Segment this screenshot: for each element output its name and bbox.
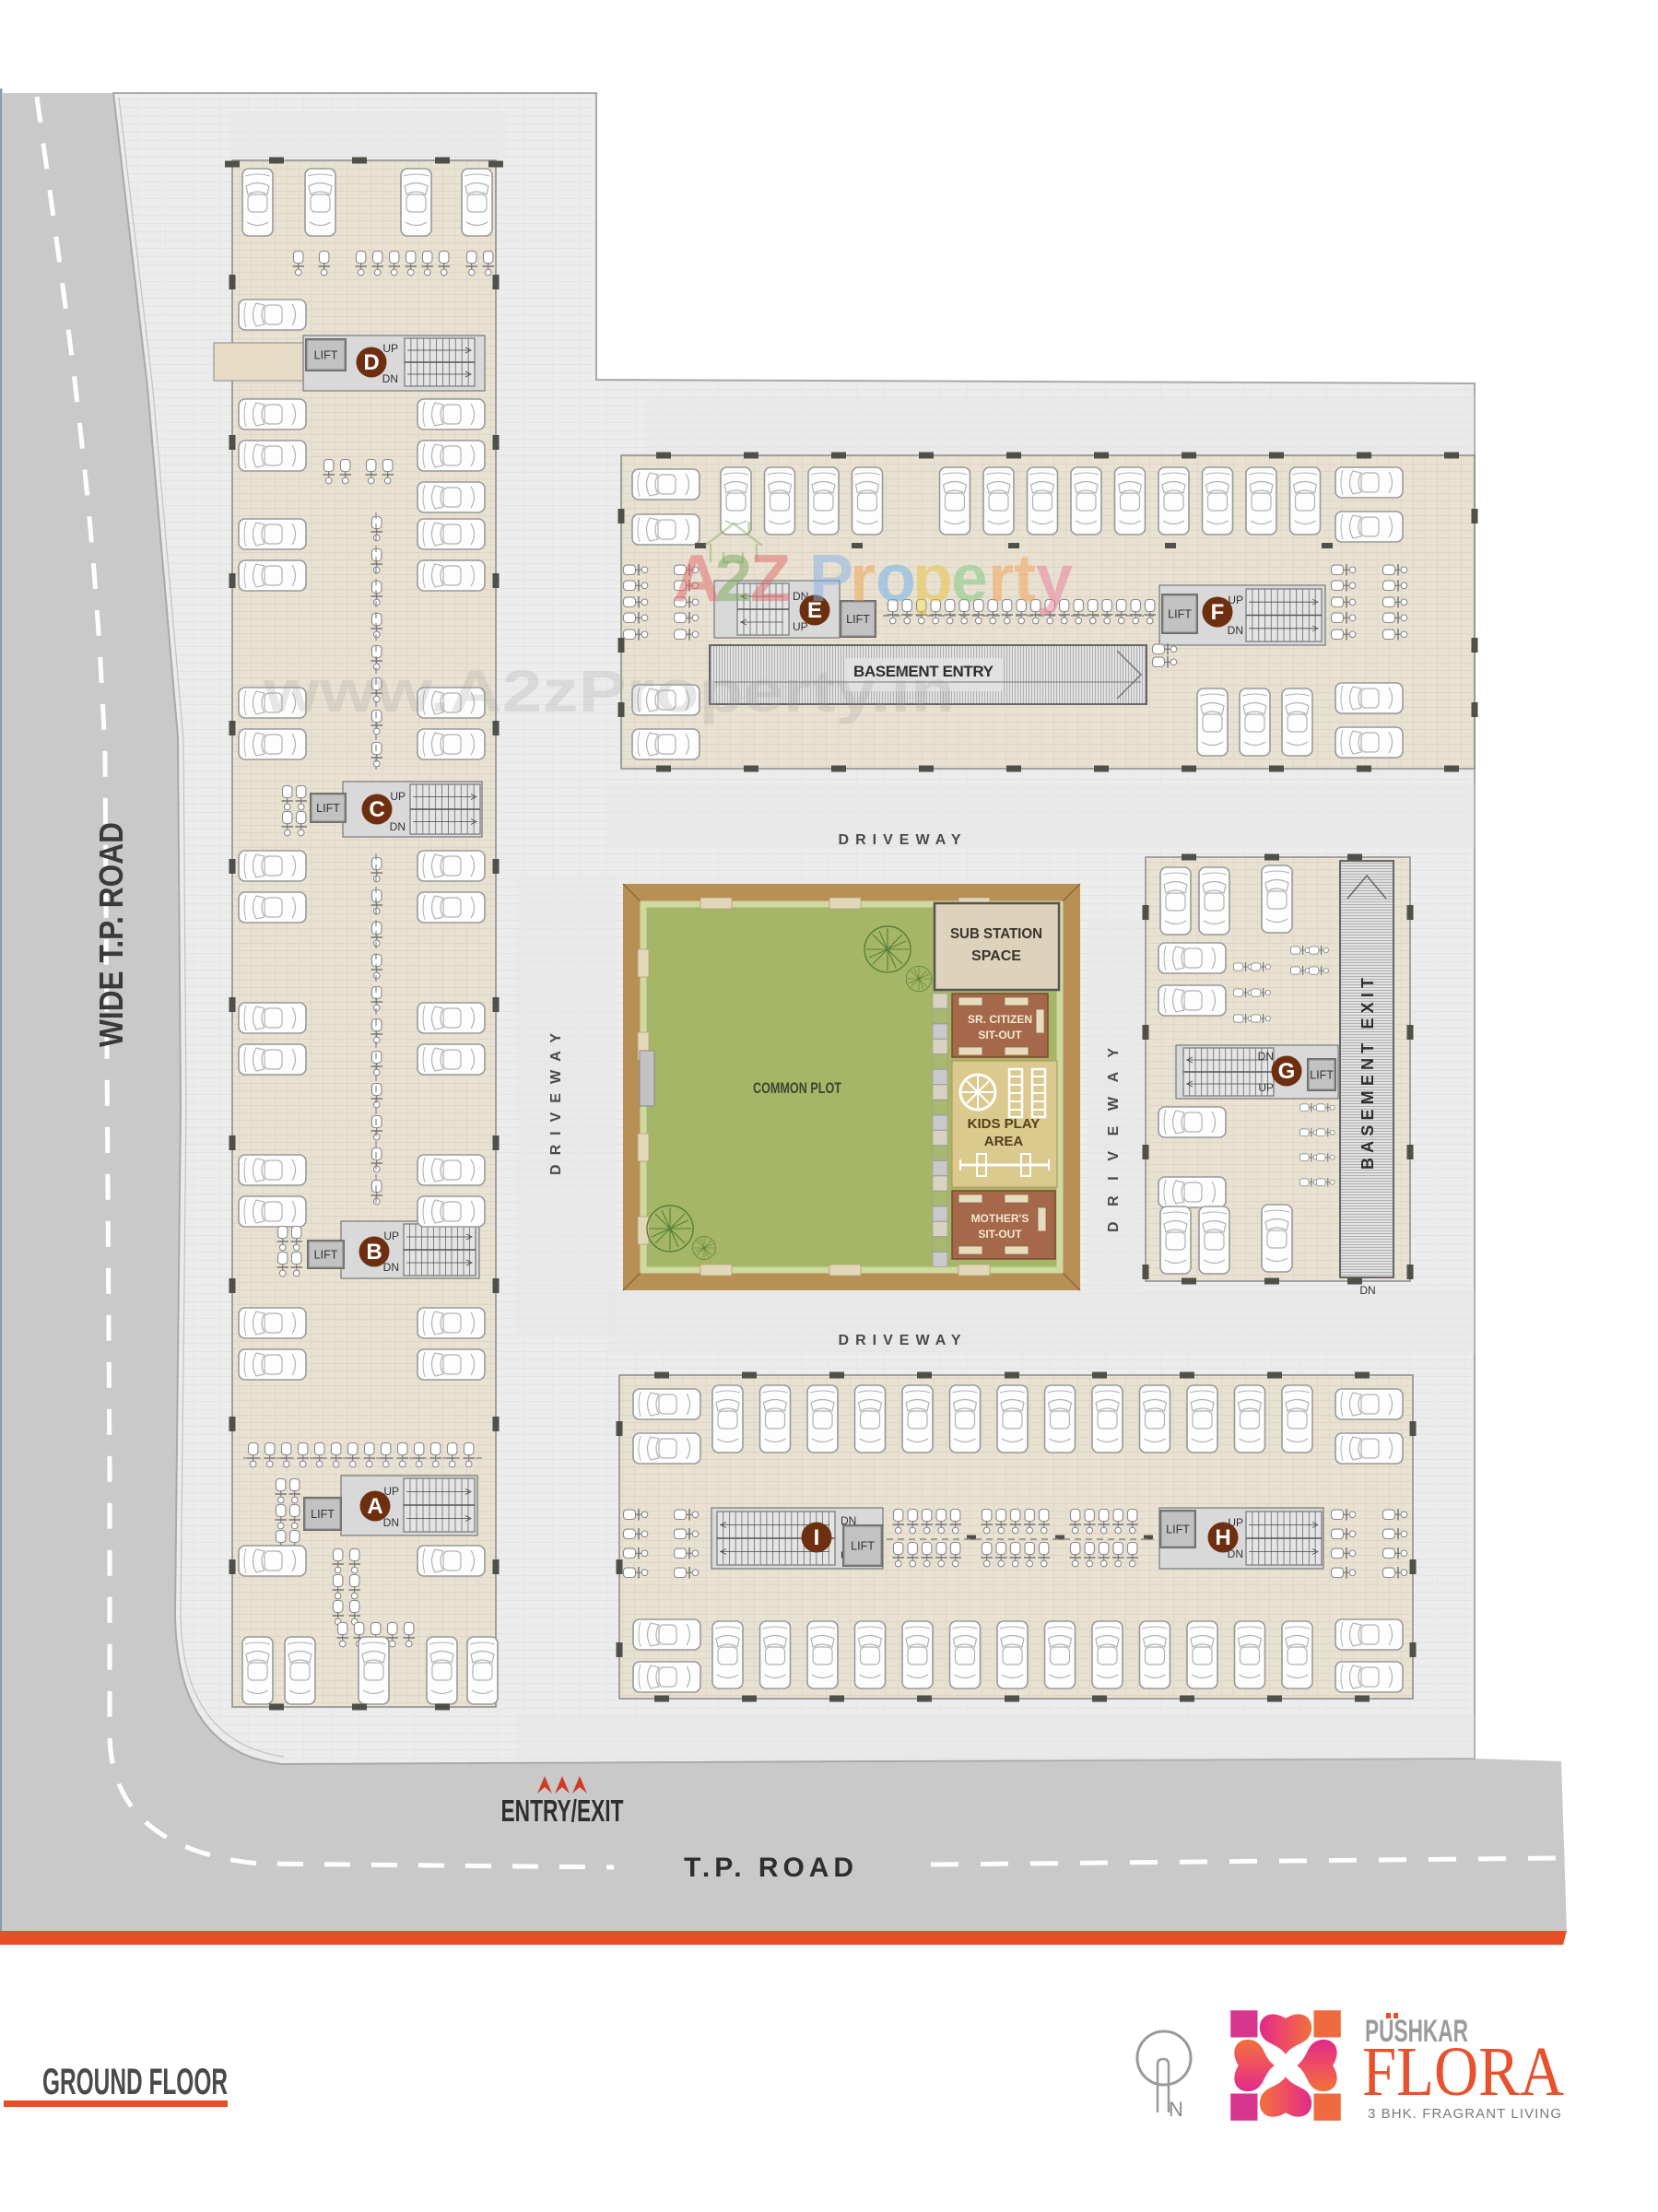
svg-text:r: r: [988, 542, 1014, 616]
svg-text:D: D: [363, 350, 379, 375]
svg-text:UP: UP: [1258, 1081, 1274, 1094]
svg-text:UP: UP: [383, 1230, 399, 1242]
svg-text:LIFT: LIFT: [314, 1249, 338, 1262]
svg-text:LIFT: LIFT: [1310, 1069, 1334, 1082]
svg-text:3 BHK. FRAGRANT LIVING: 3 BHK. FRAGRANT LIVING: [1368, 2106, 1561, 2122]
svg-text:SIT-OUT: SIT-OUT: [978, 1228, 1022, 1241]
svg-text:GROUND FLOOR: GROUND FLOOR: [42, 2062, 228, 2102]
svg-text:2: 2: [715, 542, 752, 616]
svg-text:UP: UP: [382, 342, 398, 355]
svg-text:FLORA: FLORA: [1362, 2033, 1564, 2111]
svg-text:F: F: [1211, 600, 1225, 625]
svg-text:UP: UP: [1228, 594, 1243, 606]
svg-text:y: y: [1036, 542, 1073, 616]
svg-text:B: B: [366, 1240, 382, 1265]
svg-text:UP: UP: [390, 790, 406, 803]
svg-text:UP: UP: [1228, 1516, 1243, 1529]
svg-text:o: o: [876, 542, 916, 616]
svg-text:DRIVEWAY: DRIVEWAY: [839, 832, 961, 848]
svg-text:SR. CITIZEN: SR. CITIZEN: [968, 1013, 1032, 1026]
svg-text:H: H: [1215, 1525, 1230, 1550]
svg-text:SUB STATION: SUB STATION: [950, 926, 1042, 942]
svg-text:C: C: [369, 797, 384, 822]
svg-text:LIFT: LIFT: [851, 1540, 875, 1553]
svg-text:I: I: [814, 1525, 820, 1550]
svg-text:DN: DN: [383, 1516, 399, 1529]
svg-text:r: r: [850, 542, 876, 616]
svg-text:DN: DN: [1258, 1050, 1274, 1063]
svg-text:T.P. ROAD: T.P. ROAD: [684, 1853, 853, 1883]
svg-text:DRIVEWAY: DRIVEWAY: [839, 1333, 961, 1348]
svg-text:A: A: [367, 1494, 382, 1519]
svg-text:DN: DN: [390, 820, 406, 833]
svg-text:e: e: [951, 542, 988, 616]
svg-text:N: N: [1169, 2098, 1183, 2121]
svg-text:DN: DN: [383, 1261, 399, 1274]
svg-text:p: p: [912, 542, 953, 616]
svg-text:A: A: [673, 542, 721, 616]
svg-text:AREA: AREA: [984, 1134, 1024, 1149]
svg-text:www.A2zProperty.in: www.A2zProperty.in: [263, 658, 955, 724]
svg-text:Z: Z: [750, 542, 791, 616]
svg-text:G: G: [1278, 1059, 1296, 1084]
svg-text:DN: DN: [1228, 1547, 1243, 1560]
svg-text:t: t: [1014, 542, 1036, 616]
svg-text:LIFT: LIFT: [311, 1508, 335, 1521]
svg-text:DN: DN: [1359, 1284, 1375, 1297]
svg-text:COMMON PLOT: COMMON PLOT: [753, 1079, 841, 1097]
svg-text:P: P: [809, 542, 853, 616]
svg-text:SPACE: SPACE: [971, 948, 1021, 964]
svg-text:LIFT: LIFT: [1168, 608, 1192, 621]
svg-text:ENTRY/EXIT: ENTRY/EXIT: [501, 1794, 624, 1828]
svg-text:DN: DN: [1228, 624, 1243, 637]
svg-text:SIT-OUT: SIT-OUT: [978, 1029, 1022, 1041]
svg-text:KIDS PLAY: KIDS PLAY: [968, 1116, 1041, 1132]
svg-text:MOTHER'S: MOTHER'S: [971, 1212, 1029, 1225]
svg-text:DN: DN: [382, 372, 398, 385]
svg-text:LIFT: LIFT: [314, 349, 338, 362]
svg-text:LIFT: LIFT: [1166, 1524, 1190, 1536]
svg-text:LIFT: LIFT: [316, 802, 340, 815]
svg-text:WIDE T.P. ROAD: WIDE T.P. ROAD: [92, 822, 130, 1047]
